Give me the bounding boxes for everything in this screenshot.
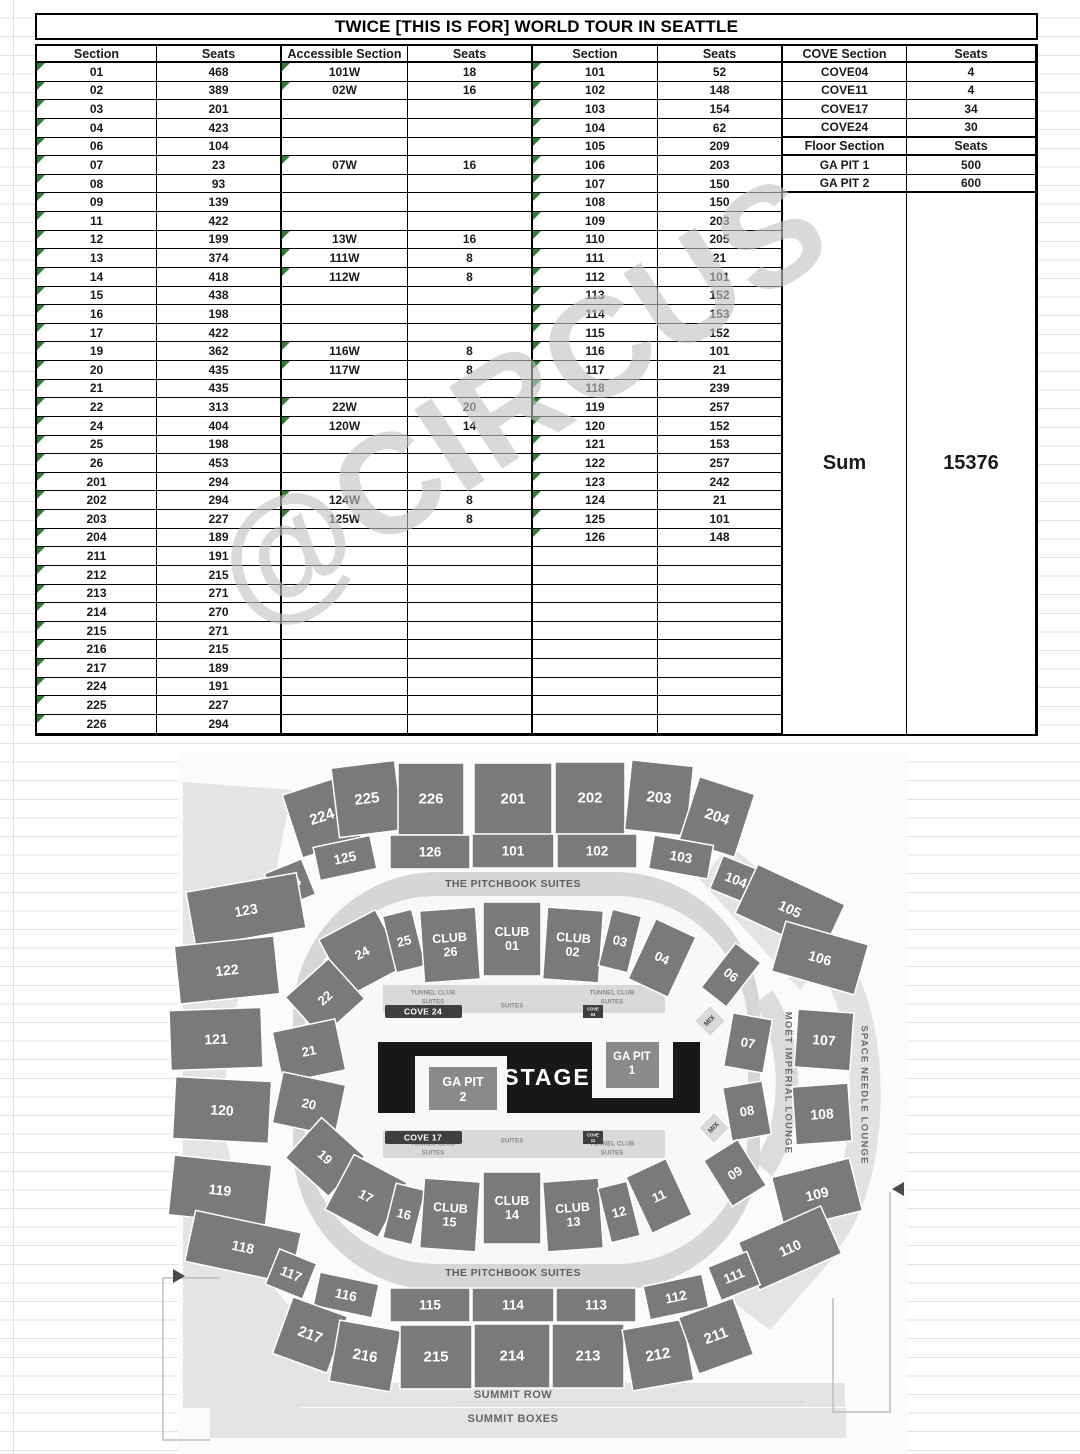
cell-acc-seats-r12[interactable] [408,287,533,306]
cell-acc-section-r17[interactable] [282,380,408,399]
cell-seats-216[interactable]: 215 [157,640,282,659]
cell-acc-section-r12[interactable] [282,287,408,306]
column-header-7[interactable]: COVE Section [783,46,907,63]
cell-section-25[interactable]: 25 [37,436,157,455]
cell-acc-section-r34[interactable] [282,696,408,715]
cell-section2-r31[interactable] [533,640,658,659]
cell-section-24[interactable]: 24 [37,417,157,436]
cell-seats-16[interactable]: 198 [157,305,282,324]
cell-seats-217[interactable]: 189 [157,659,282,678]
cell-acc-section-r16[interactable]: 117W [282,361,408,380]
cell-acc-seats-r16[interactable]: 8 [408,361,533,380]
cell-section2-r32[interactable] [533,659,658,678]
cell-acc-seats-r9[interactable]: 16 [408,231,533,250]
stage-label: STAGE [503,1064,591,1090]
svg-text:20: 20 [300,1095,317,1113]
cell-seats-26[interactable]: 453 [157,454,282,473]
cell-acc-section-r20[interactable] [282,436,408,455]
cell-section-214[interactable]: 214 [37,603,157,622]
cell-acc-seats-r24[interactable]: 8 [408,510,533,529]
cell-acc-seats-r13[interactable] [408,305,533,324]
cell-section2-r15-label: 116 [585,344,604,358]
text-flag-icon [37,696,45,704]
column-header-4-label: Seats [453,47,486,61]
cell-seats2-r2[interactable]: 154 [658,100,783,119]
cell-acc-section-r1[interactable]: 02W [282,82,408,101]
cell-section-11-label: 11 [90,214,103,228]
cell-section-217[interactable]: 217 [37,659,157,678]
cell-acc-seats-r31[interactable] [408,640,533,659]
cell-section2-r8-label: 109 [585,214,605,228]
svg-text:113: 113 [585,1298,607,1313]
cell-section2-r12[interactable]: 113 [533,287,658,306]
cell-seats2-r14[interactable]: 152 [658,324,783,343]
cell-acc-section-r9[interactable]: 13W [282,231,408,250]
cell-cove-COVE17[interactable]: COVE17 [783,100,907,119]
cell-acc-section-r23[interactable]: 124W [282,491,408,510]
map-section-202: 202 [555,762,625,834]
cell-seats2-r23[interactable]: 21 [658,491,783,510]
cell-cove-COVE24[interactable]: COVE24 [783,119,907,138]
cell-section2-r18[interactable]: 119 [533,398,658,417]
sum-value[interactable]: 15376 [907,193,1036,733]
cell-seats-225[interactable]: 227 [157,696,282,715]
cell-section2-r16[interactable]: 117 [533,361,658,380]
cell-seats-12[interactable]: 199 [157,231,282,250]
cell-acc-seats-r23[interactable]: 8 [408,491,533,510]
cell-floor-seats-2[interactable]: 600 [907,175,1036,194]
cell-section-201[interactable]: 201 [37,473,157,492]
cell-section-216[interactable]: 216 [37,640,157,659]
cell-acc-seats-r14[interactable] [408,324,533,343]
cell-acc-section-r32[interactable] [282,659,408,678]
cell-section-22[interactable]: 22 [37,398,157,417]
cell-section-07[interactable]: 07 [37,156,157,175]
cell-acc-section-r2[interactable] [282,100,408,119]
cell-section-04[interactable]: 04 [37,119,157,138]
cell-section-13[interactable]: 13 [37,249,157,268]
cell-section-204[interactable]: 204 [37,529,157,548]
svg-text:SUITES: SUITES [422,1150,445,1157]
cell-acc-seats-r17[interactable] [408,380,533,399]
cell-acc-seats-r7[interactable] [408,193,533,212]
cell-seats2-r21[interactable]: 257 [658,454,783,473]
cell-section-213[interactable]: 213 [37,585,157,604]
cell-acc-seats-r19[interactable]: 14 [408,417,533,436]
cell-seats-13[interactable]: 374 [157,249,282,268]
column-header-1[interactable]: Section [37,46,157,63]
cell-seats2-r6[interactable]: 150 [658,175,783,194]
cell-floor-seats-1[interactable]: 500 [907,156,1036,175]
cell-acc-seats-r6[interactable] [408,175,533,194]
cell-section-08[interactable]: 08 [37,175,157,194]
cell-acc-seats-r11[interactable]: 8 [408,268,533,287]
cell-seats2-r4-label: 209 [709,139,729,153]
sum-value-label: 15376 [943,452,999,475]
cell-section-01[interactable]: 01 [37,63,157,82]
cell-acc-section-r18[interactable]: 22W [282,398,408,417]
cell-seats-204[interactable]: 189 [157,529,282,548]
cell-seats2-r17[interactable]: 239 [658,380,783,399]
cell-section2-r28[interactable] [533,585,658,604]
cell-acc-section-r30[interactable] [282,622,408,641]
cell-section2-r8[interactable]: 109 [533,212,658,231]
map-section-226: 226 [398,763,464,835]
cell-seats2-r3[interactable]: 62 [658,119,783,138]
cell-acc-section-r10[interactable]: 111W [282,249,408,268]
cell-acc-seats-r1[interactable]: 16 [408,82,533,101]
cell-section-19[interactable]: 19 [37,342,157,361]
page-title[interactable]: TWICE [THIS IS FOR] WORLD TOUR IN SEATTL… [35,13,1038,40]
cell-seats2-r31[interactable] [658,640,783,659]
cell-section-26[interactable]: 26 [37,454,157,473]
cell-seats2-r1-label: 148 [709,83,729,97]
cell-acc-section-r31[interactable] [282,640,408,659]
sum-label[interactable]: Sum [783,193,907,733]
cell-section-202[interactable]: 202 [37,491,157,510]
cell-acc-seats-r15[interactable]: 8 [408,342,533,361]
cell-section2-r4[interactable]: 105 [533,138,658,157]
cell-section2-r21[interactable]: 122 [533,454,658,473]
column-header-8[interactable]: Seats [907,46,1036,63]
cell-section2-r23[interactable]: 124 [533,491,658,510]
cell-seats-22[interactable]: 313 [157,398,282,417]
cell-acc-seats-r33[interactable] [408,678,533,697]
cell-acc-seats-r20[interactable] [408,436,533,455]
cell-acc-seats-r10[interactable]: 8 [408,249,533,268]
cell-section2-r7[interactable]: 108 [533,193,658,212]
map-section-120: 120 [172,1077,271,1144]
cell-seats-04[interactable]: 423 [157,119,282,138]
cell-seats-01-label: 468 [208,65,228,79]
cell-acc-seats-r29[interactable] [408,603,533,622]
cell-seats-21[interactable]: 435 [157,380,282,399]
cell-acc-section-r14[interactable] [282,324,408,343]
column-header-2[interactable]: Seats [157,46,282,63]
cell-section2-r2[interactable]: 103 [533,100,658,119]
cell-seats-201[interactable]: 294 [157,473,282,492]
text-flag-icon [533,156,541,164]
cell-seats2-r28[interactable] [658,585,783,604]
cell-acc-section-r6[interactable] [282,175,408,194]
cell-section2-r29[interactable] [533,603,658,622]
cell-seats2-r30[interactable] [658,622,783,641]
svg-text:SUITES: SUITES [501,1003,524,1010]
cell-section2-r12-label: 113 [585,288,604,302]
cell-section-17[interactable]: 17 [37,324,157,343]
cell-seats-211[interactable]: 191 [157,547,282,566]
cell-seats2-r11[interactable]: 101 [658,268,783,287]
cell-acc-seats-r34[interactable] [408,696,533,715]
column-header-7-label: COVE Section [802,47,886,61]
cell-seats2-r18-label: 257 [709,400,729,414]
cell-seats-215[interactable]: 271 [157,622,282,641]
cell-section-16[interactable]: 16 [37,305,157,324]
cell-seats-02[interactable]: 389 [157,82,282,101]
cell-seats2-r12-label: 152 [709,288,729,302]
cell-seats2-r10[interactable]: 21 [658,249,783,268]
text-flag-icon [37,454,45,462]
cell-seats2-r34[interactable] [658,696,783,715]
cell-seats-212[interactable]: 215 [157,566,282,585]
cell-seats2-r29[interactable] [658,603,783,622]
cell-seats-08[interactable]: 93 [157,175,282,194]
cell-acc-seats-r2[interactable] [408,100,533,119]
cell-seats2-r27[interactable] [658,566,783,585]
cell-acc-seats-r5-label: 16 [463,158,476,172]
cell-seats2-r33[interactable] [658,678,783,697]
cell-section-215[interactable]: 215 [37,622,157,641]
cell-acc-section-r26[interactable] [282,547,408,566]
svg-text:21: 21 [300,1042,317,1060]
cell-section2-r11[interactable]: 112 [533,268,658,287]
cell-acc-seats-r26[interactable] [408,547,533,566]
svg-text:226: 226 [418,791,443,808]
cell-section2-r14[interactable]: 115 [533,324,658,343]
cell-section-12[interactable]: 12 [37,231,157,250]
cell-seats-07[interactable]: 23 [157,156,282,175]
cell-seats-11[interactable]: 422 [157,212,282,231]
cell-seats-20[interactable]: 435 [157,361,282,380]
text-flag-icon [533,380,541,388]
svg-text:GA PIT: GA PIT [442,1075,484,1089]
cell-section2-r35[interactable] [533,715,658,734]
cell-acc-section-r5[interactable]: 07W [282,156,408,175]
cell-section2-r13[interactable]: 114 [533,305,658,324]
cell-cove-seats-COVE11[interactable]: 4 [907,82,1036,101]
cell-acc-seats-r28[interactable] [408,585,533,604]
cell-seats-202-label: 294 [208,493,228,507]
cell-seats-06[interactable]: 104 [157,138,282,157]
cell-seats2-r22[interactable]: 242 [658,473,783,492]
cell-acc-section-r15[interactable]: 116W [282,342,408,361]
cell-seats-09[interactable]: 139 [157,193,282,212]
cell-section-09[interactable]: 09 [37,193,157,212]
cell-acc-section-r21[interactable] [282,454,408,473]
cell-acc-seats-r30[interactable] [408,622,533,641]
cell-section2-r5[interactable]: 106 [533,156,658,175]
cell-seats2-r16[interactable]: 21 [658,361,783,380]
cell-seats2-r10-label: 21 [713,251,726,265]
cell-seats-01[interactable]: 468 [157,63,282,82]
cell-acc-section-r35[interactable] [282,715,408,734]
cell-section2-r11-label: 112 [585,270,604,284]
cell-seats-03[interactable]: 201 [157,100,282,119]
cell-acc-section-r27[interactable] [282,566,408,585]
cell-section-14[interactable]: 14 [37,268,157,287]
column-header-4[interactable]: Seats [408,46,533,63]
cell-cove-COVE04[interactable]: COVE04 [783,63,907,82]
cell-seats2-r18[interactable]: 257 [658,398,783,417]
cell-floor-2-label: GA PIT 2 [820,176,870,190]
cell-acc-seats-r21[interactable] [408,454,533,473]
cell-acc-section-r8[interactable] [282,212,408,231]
cell-acc-section-r29[interactable] [282,603,408,622]
svg-text:COVE: COVE [587,1007,599,1012]
cell-cove-COVE11[interactable]: COVE11 [783,82,907,101]
column-header-6[interactable]: Seats [658,46,783,63]
cell-acc-section-r13[interactable] [282,305,408,324]
cell-section2-r22[interactable]: 123 [533,473,658,492]
cell-seats-19[interactable]: 362 [157,342,282,361]
cell-cove-seats-COVE04[interactable]: 4 [907,63,1036,82]
cell-acc-section-r24[interactable]: 125W [282,510,408,529]
cell-section2-r19[interactable]: 120 [533,417,658,436]
cell-seats-17[interactable]: 422 [157,324,282,343]
cell-acc-seats-r0[interactable]: 18 [408,63,533,82]
cell-section2-r15[interactable]: 116 [533,342,658,361]
cell-cove-seats-COVE24[interactable]: 30 [907,119,1036,138]
cell-cove-seats-COVE11-label: 4 [968,83,975,97]
cell-section-21[interactable]: 21 [37,380,157,399]
text-flag-icon [533,268,541,276]
cell-section-225[interactable]: 225 [37,696,157,715]
cell-section2-r9[interactable]: 110 [533,231,658,250]
cell-seats2-r35[interactable] [658,715,783,734]
cell-section2-r0-label: 101 [585,65,605,79]
cell-seats-216-label: 215 [208,642,228,656]
cell-floor-2[interactable]: GA PIT 2 [783,175,907,194]
cell-seats2-r24[interactable]: 101 [658,510,783,529]
cell-seats2-r25[interactable]: 148 [658,529,783,548]
svg-text:CLUB: CLUB [555,1200,591,1216]
cell-seats2-r0[interactable]: 52 [658,63,783,82]
cell-section-202-label: 202 [86,493,106,507]
text-flag-icon [282,342,290,350]
cell-acc-section-r19[interactable]: 120W [282,417,408,436]
cell-section2-r26[interactable] [533,547,658,566]
floor-section-header[interactable]: Floor Section [783,138,907,157]
cell-acc-seats-r8[interactable] [408,212,533,231]
cell-seats-214[interactable]: 270 [157,603,282,622]
cell-seats2-r5[interactable]: 203 [658,156,783,175]
cell-seats-213[interactable]: 271 [157,585,282,604]
cell-section2-r27[interactable] [533,566,658,585]
map-section-club-02: CLUB02 [543,907,604,983]
cell-acc-section-r33[interactable] [282,678,408,697]
cell-section-212[interactable]: 212 [37,566,157,585]
cell-section2-r34[interactable] [533,696,658,715]
svg-text:107: 107 [812,1031,837,1049]
cell-seats-226-label: 294 [208,717,228,731]
cell-seats2-r19[interactable]: 152 [658,417,783,436]
cell-acc-seats-r25[interactable] [408,529,533,548]
cell-seats2-r20[interactable]: 153 [658,436,783,455]
cell-section2-r1[interactable]: 102 [533,82,658,101]
cell-acc-section-r4[interactable] [282,138,408,157]
cell-acc-seats-r5[interactable]: 16 [408,156,533,175]
cell-seats-26-label: 453 [208,456,228,470]
column-header-5-label: Section [572,47,617,61]
cell-section2-r0[interactable]: 101 [533,63,658,82]
cell-seats-203[interactable]: 227 [157,510,282,529]
cell-floor-1[interactable]: GA PIT 1 [783,156,907,175]
cell-section2-r6-label: 107 [585,177,605,191]
text-flag-icon [37,249,45,257]
cell-section-13-label: 13 [90,251,103,265]
cell-acc-section-r25[interactable] [282,529,408,548]
cell-section2-r25[interactable]: 126 [533,529,658,548]
cell-seats2-r7[interactable]: 150 [658,193,783,212]
cell-section2-r17[interactable]: 118 [533,380,658,399]
cell-section-211[interactable]: 211 [37,547,157,566]
cell-acc-seats-r3[interactable] [408,119,533,138]
column-header-3[interactable]: Accessible Section [282,46,408,63]
cell-section-04-label: 04 [90,121,103,135]
cell-seats2-r0-label: 52 [713,65,726,79]
cell-seats2-r13[interactable]: 153 [658,305,783,324]
cell-seats2-r26[interactable] [658,547,783,566]
cell-section2-r3[interactable]: 104 [533,119,658,138]
cell-cove-seats-COVE17[interactable]: 34 [907,100,1036,119]
cell-section2-r33[interactable] [533,678,658,697]
map-section-108: 108 [792,1083,852,1145]
floor-seats-header[interactable]: Seats [907,138,1036,157]
cell-acc-seats-r27[interactable] [408,566,533,585]
cell-seats2-r9[interactable]: 205 [658,231,783,250]
cell-section-224[interactable]: 224 [37,678,157,697]
cell-seats2-r4[interactable]: 209 [658,138,783,157]
cell-section-06[interactable]: 06 [37,138,157,157]
cell-seats-15[interactable]: 438 [157,287,282,306]
cell-acc-seats-r35[interactable] [408,715,533,734]
cell-section2-r30[interactable] [533,622,658,641]
cell-section-03[interactable]: 03 [37,100,157,119]
cell-seats-202[interactable]: 294 [157,491,282,510]
cell-section2-r24[interactable]: 125 [533,510,658,529]
cell-seats2-r32[interactable] [658,659,783,678]
cell-section-226[interactable]: 226 [37,715,157,734]
cell-acc-seats-r18[interactable]: 20 [408,398,533,417]
cell-seats-25[interactable]: 198 [157,436,282,455]
cell-acc-section-r11[interactable]: 112W [282,268,408,287]
cell-seats-226[interactable]: 294 [157,715,282,734]
cell-acc-section-r22[interactable] [282,473,408,492]
cell-section-203[interactable]: 203 [37,510,157,529]
text-flag-icon [533,119,541,127]
cell-section2-r6[interactable]: 107 [533,175,658,194]
cell-section-20[interactable]: 20 [37,361,157,380]
cell-section-15[interactable]: 15 [37,287,157,306]
svg-text:120: 120 [210,1101,234,1118]
cell-seats2-r15[interactable]: 101 [658,342,783,361]
cell-seats2-r8[interactable]: 203 [658,212,783,231]
cell-acc-seats-r32[interactable] [408,659,533,678]
cell-acc-section-r0[interactable]: 101W [282,63,408,82]
cell-acc-section-r28[interactable] [282,585,408,604]
cell-section2-r14-label: 115 [585,326,604,340]
cell-seats-217-label: 189 [208,661,228,675]
cell-acc-section-r7[interactable] [282,193,408,212]
cell-seats2-r12[interactable]: 152 [658,287,783,306]
cell-seats-14[interactable]: 418 [157,268,282,287]
svg-text:COVE 17: COVE 17 [404,1133,442,1143]
cell-section-11[interactable]: 11 [37,212,157,231]
map-section-08: 08 [723,1081,772,1141]
floor-seats-header-label: Seats [954,139,987,153]
cell-acc-seats-r22[interactable] [408,473,533,492]
cell-section2-r20[interactable]: 121 [533,436,658,455]
cell-seats2-r1[interactable]: 148 [658,82,783,101]
cell-seats2-r5-label: 203 [709,158,729,172]
cell-acc-seats-r4[interactable] [408,138,533,157]
cell-section2-r10[interactable]: 111 [533,249,658,268]
cell-seats-224[interactable]: 191 [157,678,282,697]
cell-acc-section-r3[interactable] [282,119,408,138]
cell-seats-24[interactable]: 404 [157,417,282,436]
cell-section-02[interactable]: 02 [37,82,157,101]
column-header-5[interactable]: Section [533,46,658,63]
